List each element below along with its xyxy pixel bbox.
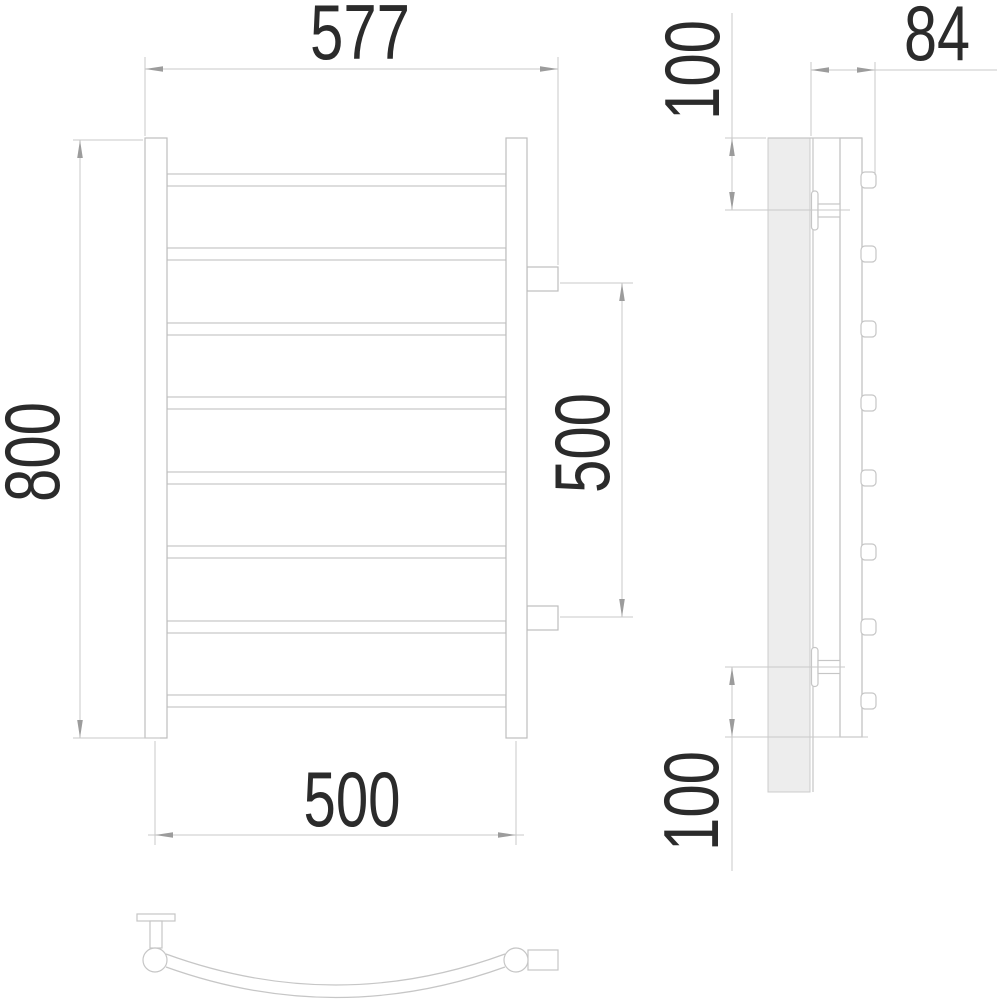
- left-rail-section: [143, 948, 167, 972]
- bar: [167, 472, 506, 484]
- bars: [167, 174, 506, 707]
- bar-bump: [861, 693, 876, 709]
- top-connector-stub: [527, 267, 558, 291]
- arrowhead-right: [540, 66, 558, 72]
- wall-plate: [768, 138, 810, 792]
- curved-bar-outer-arc: [166, 954, 505, 985]
- left-rail: [145, 138, 167, 738]
- connector-stub-top-view: [528, 950, 558, 970]
- right-rail-section: [504, 948, 528, 972]
- dimension-800-overall-height: 800: [0, 140, 160, 738]
- dim-label-100-bottom: 100: [647, 751, 735, 851]
- bar-bump: [861, 172, 876, 188]
- side-view: [768, 138, 876, 792]
- arrowhead-up: [77, 140, 83, 158]
- curved-bar-inner-arc: [166, 967, 505, 998]
- dim-label-100-top: 100: [648, 20, 736, 120]
- wall-bracket-stem-top: [150, 921, 162, 948]
- dim-label-84: 84: [904, 0, 970, 77]
- arrowhead-down: [619, 599, 625, 617]
- dim-label-800: 800: [0, 402, 76, 502]
- arrowhead-up: [729, 138, 735, 156]
- arrowhead-right: [857, 67, 875, 73]
- arrowhead-left: [145, 66, 163, 72]
- arrowhead-left: [155, 832, 173, 838]
- bar: [167, 323, 506, 335]
- wall-bracket-plate-top: [137, 914, 175, 921]
- dimension-500-connection-spacing: 500: [538, 283, 633, 617]
- arrowhead-up: [729, 667, 735, 685]
- right-rail: [506, 138, 527, 738]
- dim-label-500-right: 500: [538, 393, 626, 493]
- bar-bump: [861, 544, 876, 560]
- bar: [167, 397, 506, 409]
- bar-bump: [861, 395, 876, 411]
- arrowhead-down: [729, 192, 735, 210]
- bar: [167, 174, 506, 186]
- bar: [167, 695, 506, 707]
- arrowhead-down: [77, 720, 83, 738]
- dim-label-500-bottom: 500: [304, 755, 401, 843]
- dimension-500-rail-spacing: 500: [148, 741, 524, 845]
- dimension-100-bottom-offset: 100: [647, 667, 868, 871]
- bar: [167, 621, 506, 633]
- dimension-577-overall-width: 577: [145, 0, 558, 265]
- dimension-84-depth: 84: [811, 0, 997, 175]
- bar-bump: [861, 321, 876, 337]
- bar-bumps: [861, 172, 876, 709]
- bar-bump: [861, 619, 876, 635]
- drawing-canvas: 577 800 500 500 100: [0, 0, 1000, 1000]
- arrowhead-right: [498, 832, 516, 838]
- front-view: [145, 138, 558, 738]
- arrowhead-down: [729, 719, 735, 737]
- towel-rail-technical-drawing: 577 800 500 500 100: [0, 0, 1000, 1000]
- bottom-connector-stub: [527, 606, 558, 630]
- top-view: [137, 914, 558, 998]
- bar: [167, 248, 506, 260]
- dim-label-577: 577: [310, 0, 410, 76]
- dimension-100-top-offset: 100: [648, 13, 850, 210]
- bar-bump: [861, 470, 876, 486]
- bar-bump: [861, 246, 876, 262]
- arrowhead-left: [811, 67, 829, 73]
- bar: [167, 546, 506, 558]
- rail-tube-profile: [840, 138, 862, 737]
- arrowhead-up: [619, 283, 625, 301]
